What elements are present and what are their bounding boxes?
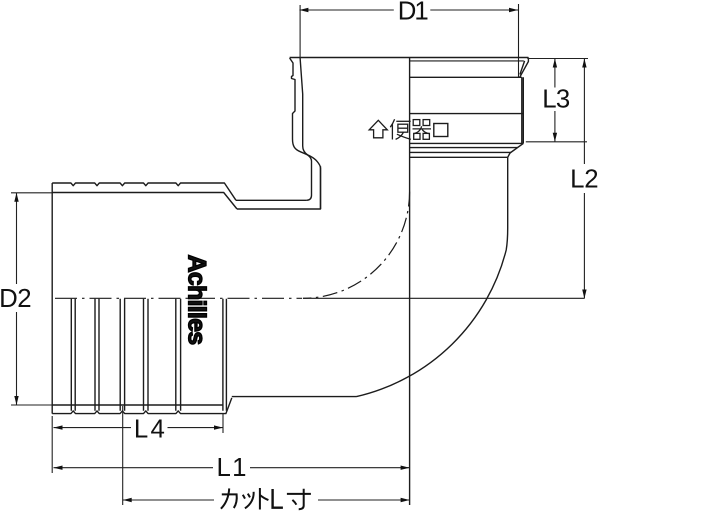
- svg-text:L1: L1: [217, 454, 247, 482]
- svg-text:D2: D2: [0, 285, 32, 313]
- svg-text:L2: L2: [570, 165, 599, 193]
- svg-text:Achilles: Achilles: [183, 255, 211, 345]
- svg-text:L4: L4: [134, 415, 165, 443]
- svg-text:L3: L3: [542, 86, 570, 114]
- svg-text:D1: D1: [398, 0, 429, 26]
